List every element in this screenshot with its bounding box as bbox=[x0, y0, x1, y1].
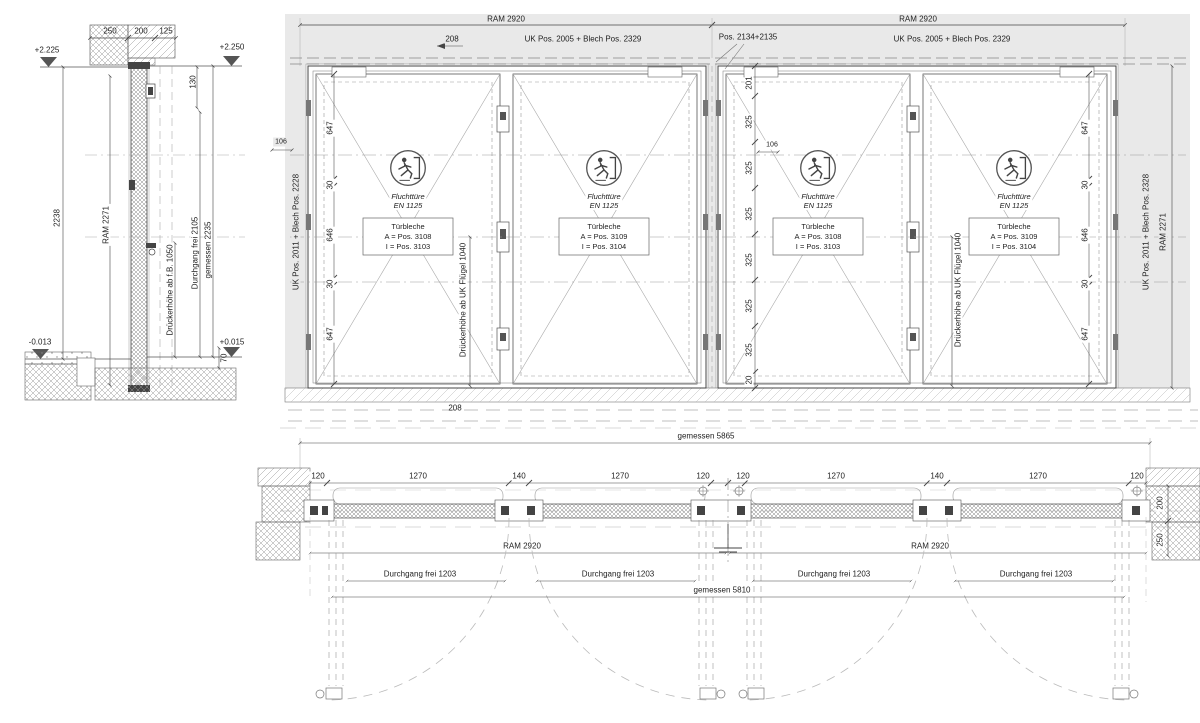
elev-dim-325-2: 325 bbox=[745, 159, 754, 176]
elev-dim-106-center: 106 bbox=[764, 141, 780, 150]
elev-dim-208-top: 208 bbox=[443, 35, 460, 44]
plan-dim-3: 140 bbox=[510, 472, 527, 481]
plan-gemessen-top: gemessen 5865 bbox=[676, 432, 737, 441]
door-3-title: Fluchttüre bbox=[801, 192, 834, 201]
section-dim-125: 125 bbox=[159, 27, 172, 36]
elev-dim-325-3: 325 bbox=[745, 205, 754, 222]
elev-left-dim-30a: 30 bbox=[326, 179, 335, 192]
section-drueckerhoehe: Drückerhöhe ab f.B. 1050 bbox=[166, 242, 175, 337]
door-4-standard: EN 1125 bbox=[1000, 201, 1029, 210]
elev-uk-left: UK Pos. 2005 + Blech Pos. 2329 bbox=[523, 35, 644, 44]
plan-dim-9: 1270 bbox=[1027, 472, 1049, 481]
plan-dim-7: 1270 bbox=[825, 472, 847, 481]
plan-durchgang-3: Durchgang frei 1203 bbox=[796, 570, 873, 579]
door-3-standard: EN 1125 bbox=[804, 201, 833, 210]
section-durchgang-frei: Durchgang frei 2105 bbox=[191, 215, 200, 292]
door-3-plate-title: Türbleche bbox=[801, 222, 834, 231]
elev-left-dim-647a: 647 bbox=[326, 119, 335, 136]
door-2-title: Fluchttüre bbox=[587, 192, 620, 201]
elev-dim-20: 20 bbox=[745, 374, 754, 387]
elev-right-dim-30b: 30 bbox=[1081, 278, 1090, 291]
door-2-plate-title: Türbleche bbox=[587, 222, 620, 231]
elev-dim-325-5: 325 bbox=[745, 297, 754, 314]
door-4-plate-i: I = Pos. 3104 bbox=[992, 242, 1036, 251]
section-dim-200: 200 bbox=[134, 27, 147, 36]
door-3-plate-i: I = Pos. 3103 bbox=[796, 242, 840, 251]
door-3-plate: TürblecheA = Pos. 3108I = Pos. 3103 bbox=[795, 222, 842, 252]
plan-wall-dim-200: 200 bbox=[1156, 494, 1165, 511]
elev-drueckerhoehe-1: Drückerhöhe ab UK Flügel 1040 bbox=[459, 241, 468, 359]
plan-dim-5: 120 bbox=[694, 472, 711, 481]
door-1-title: Fluchttüre bbox=[391, 192, 424, 201]
plan-dim-1: 120 bbox=[309, 472, 326, 481]
elev-drueckerhoehe-2: Drückerhöhe ab UK Flügel 1040 bbox=[954, 231, 963, 349]
door-1-plate-a: A = Pos. 3108 bbox=[385, 232, 432, 241]
door-2-standard: EN 1125 bbox=[590, 201, 619, 210]
level-top-right: +2.250 bbox=[220, 43, 245, 52]
level-bottom-right: +0.015 bbox=[220, 338, 245, 347]
door-1-label: FluchttüreEN 1125 bbox=[389, 192, 426, 210]
section-ram-2271: RAM 2271 bbox=[102, 204, 111, 246]
plan-durchgang-4: Durchgang frei 1203 bbox=[998, 570, 1075, 579]
section-dim-2238: 2238 bbox=[53, 209, 62, 227]
section-dim-130: 130 bbox=[189, 75, 198, 88]
plan-durchgang-2: Durchgang frei 1203 bbox=[580, 570, 657, 579]
level-bottom-left: -0.013 bbox=[29, 338, 52, 347]
door-4-plate: TürblecheA = Pos. 3109I = Pos. 3104 bbox=[991, 222, 1038, 252]
elev-right-dim-30a: 30 bbox=[1081, 179, 1090, 192]
door-1-plate-title: Türbleche bbox=[391, 222, 424, 231]
door-2-label: FluchttüreEN 1125 bbox=[585, 192, 622, 210]
elev-right-dim-647b: 647 bbox=[1081, 325, 1090, 342]
plan-ram-right: RAM 2920 bbox=[909, 542, 951, 551]
door-3-plate-a: A = Pos. 3108 bbox=[795, 232, 842, 241]
door-4-title: Fluchttüre bbox=[997, 192, 1030, 201]
plan-durchgang-1: Durchgang frei 1203 bbox=[382, 570, 459, 579]
plan-dim-10: 120 bbox=[1128, 472, 1145, 481]
elevation-view bbox=[272, 14, 1198, 421]
elev-dim-201: 201 bbox=[745, 74, 754, 91]
door-2-plate-a: A = Pos. 3109 bbox=[581, 232, 628, 241]
door-3-label: FluchttüreEN 1125 bbox=[799, 192, 836, 210]
door-1-plate-i: I = Pos. 3103 bbox=[386, 242, 430, 251]
elev-ram-right: RAM 2920 bbox=[897, 15, 939, 24]
plan-dim-8: 140 bbox=[928, 472, 945, 481]
elev-dim-325-1: 325 bbox=[745, 113, 754, 130]
door-4-plate-a: A = Pos. 3109 bbox=[991, 232, 1038, 241]
plan-ram-left: RAM 2920 bbox=[501, 542, 543, 551]
section-dim-250: 250 bbox=[103, 27, 116, 36]
plan-wall-dim-250: 250 bbox=[1156, 531, 1165, 548]
elev-dim-325-4: 325 bbox=[745, 251, 754, 268]
elev-side-right-ram: RAM 2271 bbox=[1159, 211, 1168, 253]
elev-side-right-uk: UK Pos. 2011 + Blech Pos. 2328 bbox=[1142, 172, 1151, 292]
elev-left-dim-30b: 30 bbox=[326, 278, 335, 291]
level-top-left: +2.225 bbox=[35, 46, 60, 55]
elev-side-left: UK Pos. 2011 + Blech Pos. 2228 bbox=[292, 172, 301, 292]
door-1-standard: EN 1125 bbox=[394, 201, 423, 210]
door-1-plate: TürblecheA = Pos. 3108I = Pos. 3103 bbox=[385, 222, 432, 252]
plan-dim-6: 120 bbox=[734, 472, 751, 481]
door-4-plate-title: Türbleche bbox=[997, 222, 1030, 231]
drawing-canvas bbox=[0, 0, 1200, 723]
door-4-label: FluchttüreEN 1125 bbox=[995, 192, 1032, 210]
section-gemessen: gemessen 2235 bbox=[204, 220, 213, 281]
elev-left-dim-646: 646 bbox=[326, 226, 335, 243]
elev-uk-right: UK Pos. 2005 + Blech Pos. 2329 bbox=[892, 35, 1013, 44]
elev-right-dim-646: 646 bbox=[1081, 226, 1090, 243]
elev-pos-center: Pos. 2134+2135 bbox=[717, 33, 780, 42]
elev-left-dim-647b: 647 bbox=[326, 325, 335, 342]
elev-right-dim-647a: 647 bbox=[1081, 119, 1090, 136]
elev-dim-325-6: 325 bbox=[745, 341, 754, 358]
plan-dim-2: 1270 bbox=[407, 472, 429, 481]
plan-dim-4: 1270 bbox=[609, 472, 631, 481]
plan-view bbox=[256, 428, 1200, 700]
door-2-plate: TürblecheA = Pos. 3109I = Pos. 3104 bbox=[581, 222, 628, 252]
elev-ram-left: RAM 2920 bbox=[485, 15, 527, 24]
plan-gemessen-bottom: gemessen 5810 bbox=[692, 586, 753, 595]
door-2-plate-i: I = Pos. 3104 bbox=[582, 242, 626, 251]
elev-dim-208-bottom: 208 bbox=[448, 404, 461, 413]
elev-dim-106-left: 106 bbox=[273, 138, 289, 147]
section-dim-70: 70 bbox=[220, 354, 229, 363]
technical-drawing-sheet: 250 200 125 +2.225 +2.250 130 2238 RAM 2… bbox=[0, 0, 1200, 723]
